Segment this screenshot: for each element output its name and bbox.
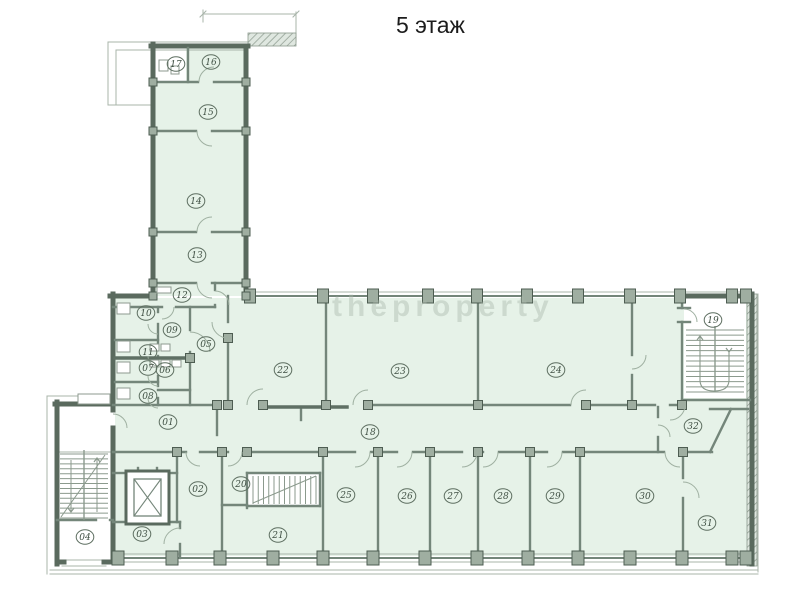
room-label-number: 30	[639, 492, 651, 502]
wall-post	[242, 279, 250, 287]
room-label-number: 27	[446, 492, 459, 502]
wall-post	[173, 448, 182, 457]
elevator-layer	[126, 471, 169, 524]
wall-post	[242, 78, 250, 86]
wall-post	[214, 551, 226, 565]
wall-post	[582, 401, 591, 410]
fixture	[78, 394, 110, 404]
wall-post	[242, 228, 250, 236]
fixture	[117, 362, 130, 373]
room-label-number: 07	[142, 364, 154, 374]
wall-post	[267, 551, 279, 565]
room-label-number: 22	[276, 366, 289, 376]
wall-post	[522, 551, 534, 565]
wall-post	[218, 448, 227, 457]
wall-post	[149, 78, 157, 86]
wall-post	[319, 448, 328, 457]
wall-post	[474, 448, 483, 457]
wall-post	[419, 551, 431, 565]
wall-post	[112, 551, 124, 565]
room-label-number: 26	[400, 492, 413, 502]
wall-post	[576, 448, 585, 457]
wall-post	[624, 551, 636, 565]
room-label-number: 17	[170, 60, 182, 70]
room-label-number: 15	[202, 108, 214, 118]
wall-post	[741, 289, 752, 303]
wall-post	[224, 401, 233, 410]
wall-post	[367, 551, 379, 565]
wall-post	[676, 551, 688, 565]
fixture	[161, 344, 170, 351]
wall-post	[149, 279, 157, 287]
wall-post	[374, 448, 383, 457]
wall-post	[322, 401, 331, 410]
wall-post	[213, 401, 222, 410]
wall-post	[149, 292, 157, 300]
room-label-number: 31	[701, 519, 712, 529]
wall-post	[625, 289, 636, 303]
fixture	[159, 60, 168, 71]
room-label-number: 16	[205, 58, 217, 68]
room-label-number: 32	[687, 422, 699, 432]
hatched-band	[248, 33, 296, 46]
wall-post	[572, 551, 584, 565]
wall-post	[526, 448, 535, 457]
room-label-number: 09	[166, 326, 178, 336]
wall-post	[426, 448, 435, 457]
floor-title: 5 этаж	[396, 12, 465, 39]
wall-post	[317, 551, 329, 565]
wall-post	[242, 292, 250, 300]
wall-post	[628, 401, 637, 410]
room-label-number: 06	[159, 366, 171, 376]
room-label-number: 21	[271, 531, 283, 541]
room-label-number: 14	[190, 197, 202, 207]
wall-post	[474, 401, 483, 410]
room-label-number: 11	[142, 348, 153, 358]
room-label-number: 13	[191, 251, 203, 261]
room-label-number: 23	[393, 367, 406, 377]
fixture	[172, 360, 181, 367]
room-label-number: 04	[79, 533, 91, 543]
room-label-number: 01	[162, 418, 173, 428]
wall-post	[149, 127, 157, 135]
wall-post	[259, 401, 268, 410]
wall-post	[727, 289, 738, 303]
wall-post	[675, 289, 686, 303]
room-label-number: 24	[549, 366, 562, 376]
wall-post	[472, 289, 483, 303]
room-label-number: 10	[140, 309, 152, 319]
fixture	[117, 303, 130, 314]
fixture	[117, 388, 130, 399]
wall-post	[522, 289, 533, 303]
wall-post	[186, 354, 195, 363]
room-label-number: 29	[548, 492, 561, 502]
room-area	[115, 298, 750, 556]
wall-post	[166, 551, 178, 565]
floor-plan-drawing: 0102030405060708091011121314151617181920…	[0, 0, 800, 600]
room-label-number: 02	[192, 485, 204, 495]
fixture	[157, 287, 171, 293]
room-label-number: 28	[496, 492, 509, 502]
room-label-number: 03	[136, 530, 148, 540]
room-label-number: 08	[142, 392, 154, 402]
wall-post	[423, 289, 434, 303]
room-label-number: 12	[176, 291, 188, 301]
wall-post	[364, 401, 373, 410]
wall-post	[740, 551, 752, 565]
floor-plan-canvas: 0102030405060708091011121314151617181920…	[0, 0, 800, 600]
wall-post	[243, 448, 252, 457]
wall-post	[471, 551, 483, 565]
wall-post	[242, 127, 250, 135]
wall-post	[149, 228, 157, 236]
room-label-number: 19	[707, 316, 719, 326]
wall-post	[368, 289, 379, 303]
room-label-number: 20	[234, 480, 247, 490]
room-label-number: 18	[364, 428, 376, 438]
wall-post	[318, 289, 329, 303]
fixture	[117, 341, 130, 352]
room-label-number: 25	[339, 491, 352, 501]
wall-post	[726, 551, 738, 565]
wall-post	[679, 448, 688, 457]
room-label-number: 05	[200, 340, 212, 350]
wall-post	[573, 289, 584, 303]
